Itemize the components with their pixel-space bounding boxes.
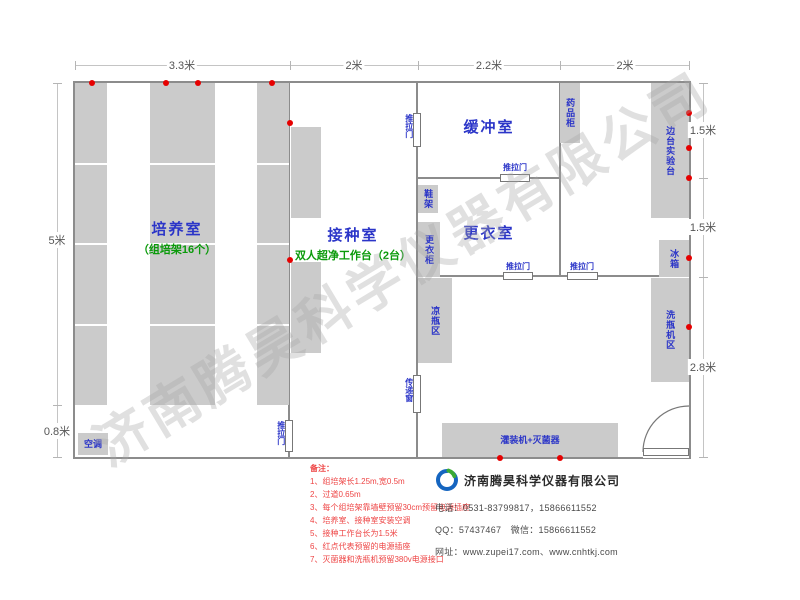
rack-shelf-divider <box>75 243 107 245</box>
sliding-door-rightroom-work-label: 推拉门 <box>560 263 604 272</box>
rack-shelf-divider <box>150 324 215 326</box>
power-outlet-dot <box>557 455 563 461</box>
room-label-1: 接种室双人超净工作台（2台） <box>295 224 411 263</box>
clean-bench-1 <box>291 127 321 218</box>
power-outlet-dot <box>686 110 692 116</box>
dim-tick-top-3 <box>560 61 561 70</box>
sliding-door-cultivation-label: 推拉门 <box>276 421 285 445</box>
power-outlet-dot <box>163 80 169 86</box>
power-outlet-dot <box>269 80 275 86</box>
dim-line-right <box>703 83 704 457</box>
sliding-door-buffer[interactable] <box>413 113 421 147</box>
company-logo-icon <box>435 468 459 492</box>
culture-rack-1 <box>75 83 107 405</box>
dim-label-right-1: 1.5米 <box>688 219 718 235</box>
company-name: 济南腾昊科学仪器有限公司 <box>464 472 620 489</box>
bottle-cooling-area: 凉瓶区 <box>418 278 452 363</box>
dim-label-right-2: 2.8米 <box>688 359 718 375</box>
side-lab-bench: 边台实验台 <box>651 83 689 218</box>
power-outlet-dot <box>195 80 201 86</box>
fridge: 冰箱 <box>659 240 689 277</box>
dim-tick-right-3 <box>699 457 708 458</box>
room-name: 培养室 <box>138 218 216 239</box>
fridge-label: 冰箱 <box>669 249 679 269</box>
power-outlet-dot <box>686 324 692 330</box>
rack-shelf-divider <box>257 163 289 165</box>
dim-tick-left-2 <box>53 457 62 458</box>
rack-shelf-divider <box>150 163 215 165</box>
wardrobe-cabinet-label: 更衣柜 <box>424 235 434 265</box>
company-qq-wechat: QQ：57437467 微信：15866611552 <box>435 523 665 536</box>
power-outlet-dot <box>686 255 692 261</box>
rack-shelf-divider <box>257 243 289 245</box>
power-outlet-dot <box>89 80 95 86</box>
dim-tick-top-0 <box>75 61 76 70</box>
power-outlet-dot <box>686 175 692 181</box>
wall-dressing-bottom <box>418 275 689 277</box>
wardrobe-cabinet: 更衣柜 <box>418 222 440 277</box>
room-label-0: 培养室（组培架16个） <box>138 218 216 257</box>
culture-rack-3 <box>257 83 289 405</box>
sliding-door-dressing-work-label: 推拉门 <box>496 263 540 272</box>
pass-window-label: 传递窗 <box>404 378 413 402</box>
room-subtitle: 双人超净工作台（2台） <box>295 247 411 263</box>
dim-tick-top-1 <box>290 61 291 70</box>
sliding-door-rightroom-work[interactable] <box>567 272 598 280</box>
room-subtitle: （组培架16个） <box>138 241 216 257</box>
dim-tick-right-0 <box>699 83 708 84</box>
entry-door-swing-arc <box>640 400 692 456</box>
rack-shelf-divider <box>257 324 289 326</box>
medicine-cabinet: 药品柜 <box>560 83 580 143</box>
bottle-cooling-area-label: 凉瓶区 <box>430 306 440 336</box>
clean-bench-2 <box>291 262 321 353</box>
dim-label-left-1: 0.8米 <box>42 423 72 439</box>
room-name: 缓冲室 <box>463 116 514 137</box>
air-conditioner: 空调 <box>78 433 108 455</box>
sliding-door-dressing-work[interactable] <box>503 272 533 280</box>
sliding-door-buffer-dressing[interactable] <box>500 174 530 182</box>
power-outlet-dot <box>287 120 293 126</box>
floor-plan-canvas: 济南腾昊科学仪器有限公司 备注： 1、组培架长1.25m,宽0.5m2、过道0.… <box>0 0 800 600</box>
bottle-washer-area: 洗瓶机区 <box>651 278 689 382</box>
dim-tick-left-1 <box>53 405 62 406</box>
company-phone: 电话：0531-83799817，15866611552 <box>435 501 665 514</box>
filling-machine-sterilizer: 灌装机+灭菌器 <box>442 423 618 457</box>
dim-label-top-3: 2米 <box>614 57 635 73</box>
dim-line-left <box>57 83 58 457</box>
pass-window[interactable] <box>413 375 421 413</box>
room-label-2: 缓冲室 <box>463 116 514 137</box>
rack-shelf-divider <box>75 163 107 165</box>
power-outlet-dot <box>497 455 503 461</box>
side-lab-bench-label: 边台实验台 <box>665 126 675 176</box>
medicine-cabinet-label: 药品柜 <box>565 98 575 128</box>
sliding-door-cultivation[interactable] <box>285 420 293 452</box>
bottle-washer-area-label: 洗瓶机区 <box>665 310 675 350</box>
room-name: 更衣室 <box>463 222 514 243</box>
wall-buffer-bottom <box>418 177 559 179</box>
dim-label-top-1: 2米 <box>343 57 364 73</box>
power-outlet-dot <box>686 145 692 151</box>
sliding-door-buffer-label: 推拉门 <box>404 114 413 138</box>
shoe-rack: 鞋架 <box>418 185 438 213</box>
shoe-rack-label: 鞋架 <box>423 189 433 209</box>
dim-tick-right-1 <box>699 178 708 179</box>
sliding-door-buffer-dressing-label: 推拉门 <box>493 164 537 173</box>
company-block: 济南腾昊科学仪器有限公司 电话：0531-83799817，1586661155… <box>435 468 665 558</box>
dim-label-top-2: 2.2米 <box>474 57 504 73</box>
dim-tick-top-4 <box>689 61 690 70</box>
room-name: 接种室 <box>295 224 411 245</box>
power-outlet-dot <box>287 257 293 263</box>
filling-machine-sterilizer-label: 灌装机+灭菌器 <box>500 435 559 445</box>
dim-label-top-0: 3.3米 <box>167 57 197 73</box>
rack-shelf-divider <box>75 324 107 326</box>
dim-tick-right-2 <box>699 277 708 278</box>
dim-label-left-0: 5米 <box>46 232 67 248</box>
room-label-3: 更衣室 <box>463 222 514 243</box>
dim-label-right-0: 1.5米 <box>688 122 718 138</box>
dim-tick-top-2 <box>418 61 419 70</box>
air-conditioner-label: 空调 <box>84 439 102 449</box>
dim-tick-left-0 <box>53 83 62 84</box>
company-website[interactable]: 网址：www.zupei17.com、www.cnhtkj.com <box>435 545 665 558</box>
